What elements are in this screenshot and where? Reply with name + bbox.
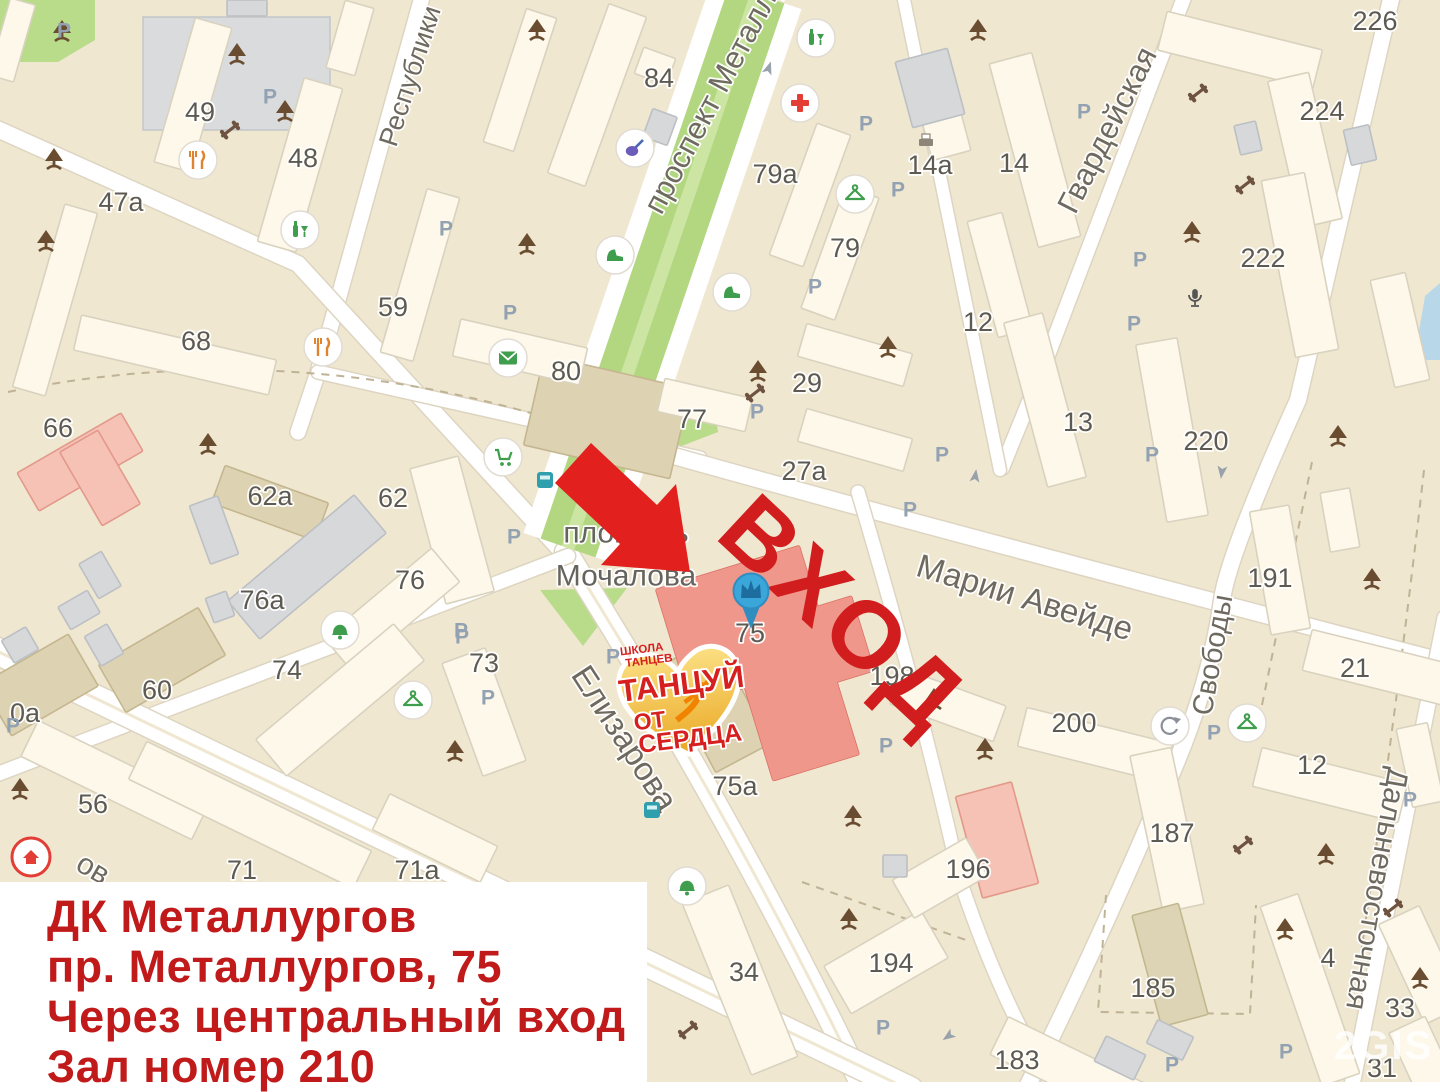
cart-icon[interactable] bbox=[484, 438, 522, 476]
building-number: 79а bbox=[752, 159, 798, 189]
building-number: 187 bbox=[1149, 818, 1194, 848]
guitar-icon[interactable] bbox=[616, 129, 654, 167]
parking-mark: P bbox=[1133, 249, 1147, 272]
building-number: 12 bbox=[963, 307, 993, 337]
parking-mark: P bbox=[1403, 789, 1417, 812]
parking-mark: P bbox=[1207, 722, 1221, 745]
building-number: 12 bbox=[1297, 750, 1327, 780]
hanger-icon[interactable] bbox=[394, 681, 432, 719]
building-number: 47а bbox=[98, 187, 144, 217]
building-number: 185 bbox=[1130, 973, 1175, 1003]
building-number: 66 bbox=[43, 413, 73, 443]
bottle-icon[interactable] bbox=[281, 211, 319, 249]
parking-mark: P bbox=[454, 620, 468, 643]
building-number: 13 bbox=[1063, 407, 1093, 437]
parking-mark: P bbox=[750, 401, 764, 424]
parking-mark: P bbox=[1165, 1054, 1179, 1077]
building-number: 49 bbox=[185, 97, 215, 127]
parking-mark: P bbox=[263, 86, 277, 109]
building-number: 48 bbox=[288, 143, 318, 173]
parking-mark: P bbox=[1127, 313, 1141, 336]
parking-mark: P bbox=[903, 499, 917, 522]
building-number: 4 bbox=[1320, 943, 1335, 973]
building-number: 194 bbox=[868, 948, 913, 978]
building-number: 74 bbox=[272, 655, 302, 685]
building-number: 27а bbox=[781, 456, 827, 486]
building bbox=[883, 855, 907, 877]
building-number: 183 bbox=[994, 1045, 1039, 1075]
building-number: 220 bbox=[1183, 426, 1228, 456]
building-number: 226 bbox=[1352, 6, 1397, 36]
building-number: 59 bbox=[378, 292, 408, 322]
parking-mark: P bbox=[876, 1017, 890, 1040]
building-number: 76 bbox=[395, 565, 425, 595]
parking-mark: P bbox=[879, 735, 893, 758]
building-number: 33 bbox=[1385, 993, 1415, 1023]
parking-mark: P bbox=[439, 218, 453, 241]
parking-mark: P bbox=[1279, 1041, 1293, 1064]
parking-mark: P bbox=[503, 302, 517, 325]
building-number: 84 bbox=[644, 63, 674, 93]
building-number: 71 bbox=[227, 855, 257, 885]
map-stage: 494847а686662а625976а767473600а567171а84… bbox=[0, 0, 1440, 1082]
building-number: 191 bbox=[1247, 563, 1292, 593]
building bbox=[227, 0, 267, 16]
parking-mark: P bbox=[6, 715, 20, 738]
building-number: 29 bbox=[792, 368, 822, 398]
building-number: 21 bbox=[1340, 653, 1370, 683]
building-number: 196 bbox=[945, 854, 990, 884]
info-line-entrance: Через центральный вход bbox=[47, 992, 647, 1042]
parking-mark: P bbox=[808, 276, 822, 299]
building-number: 76а bbox=[239, 585, 285, 615]
info-line-venue: ДК Металлургов bbox=[47, 892, 647, 942]
building-number: 56 bbox=[78, 789, 108, 819]
building-number: 34 bbox=[729, 957, 759, 987]
cross-icon[interactable] bbox=[781, 84, 819, 122]
info-box: ДК Металлургов пр. Металлургов, 75 Через… bbox=[0, 882, 647, 1082]
bottle-icon[interactable] bbox=[797, 19, 835, 57]
barber-icon[interactable] bbox=[1151, 707, 1189, 745]
shoe-icon[interactable] bbox=[596, 236, 634, 274]
building-number: 60 bbox=[142, 675, 172, 705]
parking-mark: P bbox=[481, 687, 495, 710]
info-line-address: пр. Металлургов, 75 bbox=[47, 942, 647, 992]
building-number: 79 bbox=[830, 233, 860, 263]
building-number: 77 bbox=[677, 404, 707, 434]
mail-icon[interactable] bbox=[489, 339, 527, 377]
parking-mark: P bbox=[57, 20, 71, 43]
parking-mark: P bbox=[507, 526, 521, 549]
bus-icon[interactable] bbox=[537, 472, 553, 488]
building-number: 14а bbox=[907, 150, 953, 180]
bell-icon[interactable] bbox=[321, 611, 359, 649]
building-number: 73 bbox=[469, 648, 499, 678]
restaurant-icon[interactable] bbox=[179, 141, 217, 179]
parking-mark: P bbox=[935, 444, 949, 467]
hanger-icon[interactable] bbox=[1228, 704, 1266, 742]
bell-icon[interactable] bbox=[668, 867, 706, 905]
building-number: 222 bbox=[1240, 243, 1285, 273]
building-number: 14 bbox=[999, 148, 1029, 178]
restaurant-icon[interactable] bbox=[304, 328, 342, 366]
building-number: 62а bbox=[247, 481, 293, 511]
info-line-hall: Зал номер 210 bbox=[47, 1042, 647, 1092]
map-provider-watermark: 2GIS bbox=[1334, 1024, 1433, 1069]
building-number: 224 bbox=[1299, 96, 1344, 126]
dance-school-logo: ШКОЛА ТАНЦЕВ ТАНЦУЙ ОТ СЕРДЦА bbox=[610, 632, 770, 777]
shoe-icon[interactable] bbox=[713, 273, 751, 311]
bus-icon[interactable] bbox=[644, 802, 660, 818]
parking-mark: P bbox=[891, 179, 905, 202]
building-number: 62 bbox=[378, 483, 408, 513]
building-number: 71а bbox=[394, 855, 440, 885]
parking-mark: P bbox=[859, 113, 873, 136]
building-number: 80 bbox=[551, 356, 581, 386]
hanger-icon[interactable] bbox=[836, 175, 874, 213]
parking-mark: P bbox=[1145, 444, 1159, 467]
parking-mark: P bbox=[1077, 101, 1091, 124]
building-number: 68 bbox=[181, 326, 211, 356]
building-number: 200 bbox=[1051, 708, 1096, 738]
house-icon[interactable] bbox=[12, 838, 50, 876]
